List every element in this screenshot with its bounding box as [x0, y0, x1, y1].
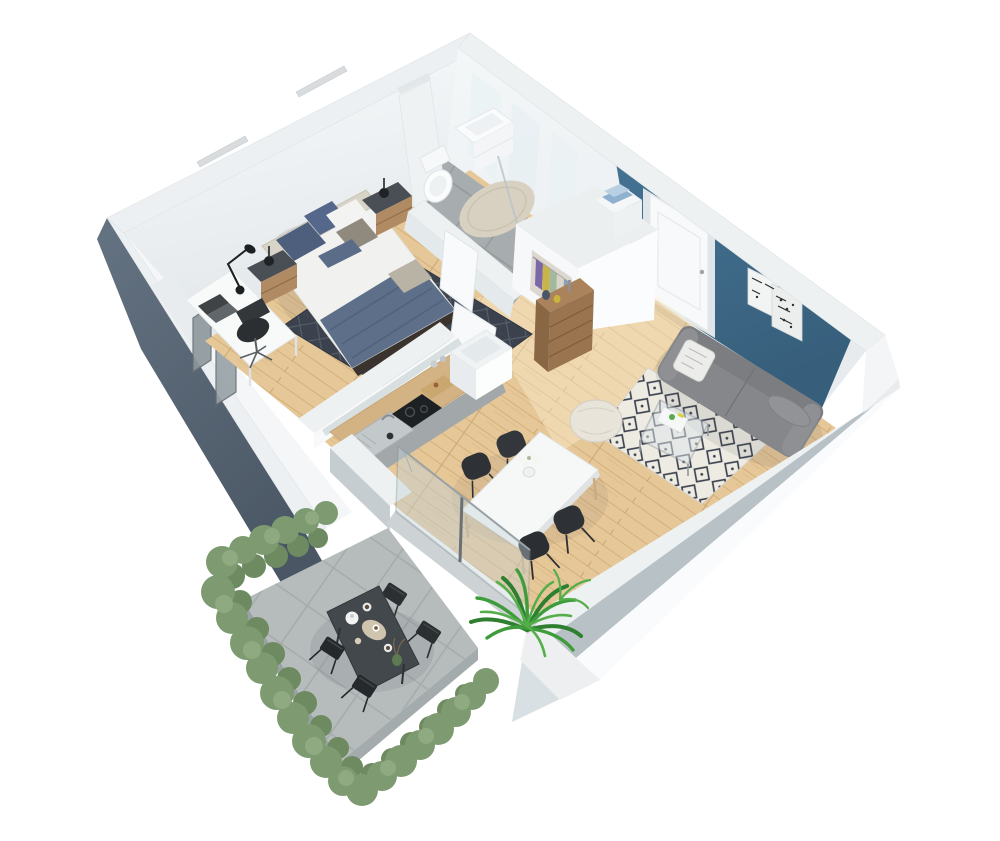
- entry-door-handle: [700, 270, 704, 274]
- board-food: [434, 383, 439, 388]
- bedside-lamp-left: [264, 256, 274, 266]
- vase-yellow: [554, 295, 561, 303]
- sink-drain: [387, 433, 394, 440]
- jar-2: [440, 356, 446, 362]
- vase-dark-blue: [542, 290, 550, 300]
- bedside-lamp-right: [379, 188, 389, 198]
- candle: [355, 638, 361, 644]
- floorplan-render: 3D isometric cutaway floor plan of a stu…: [0, 0, 1000, 841]
- pouf: [570, 400, 622, 442]
- green-vase: [392, 654, 402, 666]
- jar-1: [430, 360, 437, 367]
- window-slot-1: [296, 66, 347, 97]
- door-mullion: [460, 496, 462, 562]
- floorplan-stage: 3D isometric cutaway floor plan of a stu…: [0, 0, 1000, 841]
- magazine-green-detail: [669, 414, 675, 420]
